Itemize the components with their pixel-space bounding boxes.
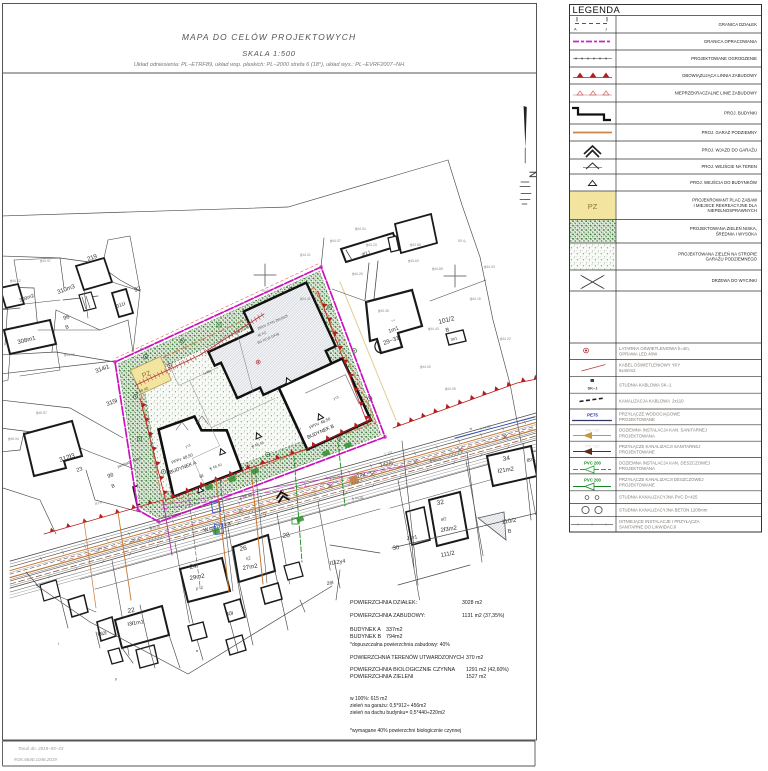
- svg-text:PE75: PE75: [587, 413, 598, 418]
- svg-text:STUDNIA KABLOWA SK−1: STUDNIA KABLOWA SK−1: [619, 382, 672, 387]
- svg-text:50.4₄: 50.4₄: [458, 239, 467, 243]
- svg-text:PROJEKTOWANA: PROJEKTOWANA: [619, 466, 655, 471]
- svg-text:PROJEKTOWANE: PROJEKTOWANE: [619, 417, 655, 422]
- svg-text:╈44.07: ╈44.07: [329, 238, 341, 243]
- svg-text:PROJEKTOWANE: PROJEKTOWANE: [619, 450, 655, 455]
- svg-text:PVC 160: PVC 160: [585, 445, 599, 449]
- svg-text:╈44.65: ╈44.65: [431, 266, 443, 271]
- svg-text:у: у: [115, 676, 117, 681]
- svg-text:PROJEKTOWANA: PROJEKTOWANA: [619, 433, 655, 438]
- svg-text:POWIERZCHNIA DZIAŁEK:: POWIERZCHNIA DZIAŁEK:: [350, 600, 417, 606]
- svg-text:в: в: [196, 648, 198, 653]
- svg-text:PROJ. WEJŚCIE NA TEREN: PROJ. WEJŚCIE NA TEREN: [701, 164, 757, 169]
- svg-text:PROJEKTOWANA ZIELEŃ NISKA,: PROJEKTOWANA ZIELEŃ NISKA,: [690, 226, 757, 231]
- svg-text:34: 34: [502, 455, 511, 463]
- svg-text:PROJ. GARAŻ PODZIEMNY: PROJ. GARAŻ PODZIEMNY: [702, 130, 758, 135]
- svg-text:Toruń dn. 2019−05−23: Toruń dn. 2019−05−23: [18, 746, 64, 751]
- svg-text:KANALIZACJA KABLOWA 2x110: KANALIZACJA KABLOWA 2x110: [619, 399, 684, 404]
- svg-text:PVC 200: PVC 200: [584, 461, 601, 466]
- svg-text:PZ: PZ: [588, 202, 598, 211]
- svg-text:╈43.35: ╈43.35: [377, 308, 389, 313]
- svg-text:370 m2: 370 m2: [466, 655, 483, 661]
- svg-text:I MIEJSCE REKREACYJNE DLA: I MIEJSCE REKREACYJNE DLA: [693, 203, 757, 208]
- svg-text:DOZIEMNA INSTALACJA KAN. SANIT: DOZIEMNA INSTALACJA KAN. SANITARNEJ: [619, 428, 707, 433]
- svg-text:MAPA DO CELÓW PROJEKTOWYCH: MAPA DO CELÓW PROJEKTOWYCH: [182, 32, 356, 42]
- svg-text:PRZYŁĄCZE KANALIZACJI SANITARN: PRZYŁĄCZE KANALIZACJI SANITARNEJ: [619, 444, 700, 449]
- svg-text:ISTNIEJĄCE INSTALACJE I PRZYŁĄ: ISTNIEJĄCE INSTALACJE I PRZYŁĄCZA: [619, 519, 700, 524]
- svg-text:OBOWIĄZUJĄCA LINNIA ZABUDOWY: OBOWIĄZUJĄCA LINNIA ZABUDOWY: [682, 73, 757, 78]
- svg-text:DRZEWA DO WYCINKI: DRZEWA DO WYCINKI: [712, 278, 757, 283]
- svg-text:1527 m2: 1527 m2: [466, 674, 486, 680]
- svg-text:DOZIEMNA INSTALACJA KAN. DESZC: DOZIEMNA INSTALACJA KAN. DESZCZOWEJ: [619, 460, 710, 465]
- svg-text:PROJEKTOWANA ZIELEŃ NA STROPIE: PROJEKTOWANA ZIELEŃ NA STROPIE: [678, 251, 757, 256]
- svg-text:╈44.03: ╈44.03: [483, 264, 495, 269]
- svg-text:╈44.00: ╈44.00: [419, 364, 431, 369]
- svg-text:╈44.05: ╈44.05: [63, 352, 75, 357]
- svg-text:*wymagane 40% powierzchni biol: *wymagane 40% powierzchni biologicznie c…: [350, 728, 461, 734]
- svg-text:STUDNIA KANALIZACYJNA PVC D=42: STUDNIA KANALIZACYJNA PVC D=425: [619, 495, 698, 500]
- svg-text:NIEPRZEKRACZALNE LINIE ZABUDOW: NIEPRZEKRACZALNE LINIE ZABUDOWY: [675, 91, 758, 96]
- svg-text:zieleń na garażu: 0,5*912÷ 456: zieleń na garażu: 0,5*912÷ 456m2: [350, 703, 426, 709]
- svg-text:POWIERZCHNIA BIOLOGICZNIE CZYN: POWIERZCHNIA BIOLOGICZNIE CZYNNA: [350, 667, 456, 673]
- svg-text:PRZYŁĄCZE KANALIZACJI DESZCZOW: PRZYŁĄCZE KANALIZACJI DESZCZOWEJ: [619, 477, 704, 482]
- svg-text:Układ odniesienia: PL−ETRF89,: Układ odniesienia: PL−ETRF89, układ wsp.…: [134, 62, 405, 68]
- svg-text:N: N: [527, 171, 538, 178]
- svg-text:PRZYŁĄCZE WODOCIĄGOWE: PRZYŁĄCZE WODOCIĄGOWE: [619, 412, 680, 417]
- svg-text:LEGENDA: LEGENDA: [573, 4, 621, 15]
- svg-text:╈44.31: ╈44.31: [299, 296, 311, 301]
- svg-text:POWIERZCHNIA TERENÓW UTWARDZON: POWIERZCHNIA TERENÓW UTWARDZONYCH: [350, 654, 464, 661]
- svg-text:╈45.57: ╈45.57: [35, 410, 47, 415]
- svg-text:SANITARNE DO LIKWIDACJI: SANITARNE DO LIKWIDACJI: [619, 525, 676, 530]
- svg-text:╈45.94: ╈45.94: [7, 436, 19, 441]
- svg-text:╈14.21: ╈14.21: [299, 252, 311, 257]
- svg-text:╈44.22: ╈44.22: [499, 336, 511, 341]
- svg-text:SK−1: SK−1: [587, 386, 598, 391]
- svg-text:╈44.05: ╈44.05: [444, 386, 456, 391]
- svg-text:PROJEKTOWANE OGRODZENIE: PROJEKTOWANE OGRODZENIE: [691, 56, 757, 61]
- svg-text:PROJ. BUDYNKI: PROJ. BUDYNKI: [724, 111, 757, 116]
- svg-text:zieleń na dachu budynku= 0,5*4: zieleń na dachu budynku= 0,5*440÷220m2: [350, 710, 445, 716]
- svg-text:╈44.15: ╈44.15: [469, 296, 481, 301]
- svg-text:J: J: [605, 27, 607, 32]
- svg-text:PROJ. WJAZD DO GARAŻU: PROJ. WJAZD DO GARAŻU: [702, 148, 757, 153]
- svg-text:╈43.23: ╈43.23: [365, 242, 377, 247]
- svg-text:PROJ. WEJŚCIA DO BUDYNKÓW: PROJ. WEJŚCIA DO BUDYNKÓW: [690, 180, 758, 185]
- svg-text:32: 32: [436, 499, 445, 507]
- svg-text:╈44.12: ╈44.12: [9, 278, 21, 283]
- svg-text:#GK.6640.1046.2019: #GK.6640.1046.2019: [14, 757, 57, 762]
- svg-text:POWIERZCHNIA ZABUDOWY:: POWIERZCHNIA ZABUDOWY:: [350, 613, 425, 619]
- svg-text:BUDYNEK B: BUDYNEK B: [350, 634, 382, 640]
- svg-text:PVC 200: PVC 200: [584, 478, 601, 483]
- svg-text:GARAŻU PODZIEMNEGO: GARAŻU PODZIEMNEGO: [706, 257, 758, 262]
- svg-text:A: A: [574, 27, 577, 32]
- svg-text:LATARNIA OŚWIETLENIOWA h=4m,: LATARNIA OŚWIETLENIOWA h=4m,: [619, 346, 690, 351]
- svg-text:ŚREDNIA I WYSOKA: ŚREDNIA I WYSOKA: [716, 231, 757, 236]
- svg-text:╈43.97: ╈43.97: [39, 258, 51, 263]
- svg-text:NIEPEŁNOSPRAWNYCH: NIEPEŁNOSPRAWNYCH: [707, 208, 757, 213]
- svg-text:BUDYNEK A: BUDYNEK A: [350, 627, 381, 633]
- svg-text:OPRAWA LED 40W: OPRAWA LED 40W: [619, 352, 658, 357]
- svg-text:*dopuszczalna powierzchnia zab: *dopuszczalna powierzchnia zabudowy: 40%: [350, 642, 450, 648]
- svg-text:3028 m2: 3028 m2: [462, 600, 482, 606]
- svg-text:STUDNIA KANALIZACYJNA BETON 12: STUDNIA KANALIZACYJNA BETON 1200mm: [619, 508, 708, 513]
- svg-text:KABEL OŚWIETLENIOWY YKY: KABEL OŚWIETLENIOWY YKY: [619, 363, 680, 368]
- svg-text:╈44.43: ╈44.43: [427, 326, 439, 331]
- svg-text:PVC 160: PVC 160: [585, 429, 599, 433]
- svg-text:SKALA 1:500: SKALA 1:500: [242, 49, 296, 58]
- svg-text:╈43.63: ╈43.63: [407, 258, 419, 263]
- svg-text:╈44.04: ╈44.04: [354, 226, 366, 231]
- svg-text:PROJEKROWANT PLAC ZABAW: PROJEKROWANT PLAC ZABAW: [692, 197, 758, 202]
- svg-text:5x4mm2: 5x4mm2: [619, 368, 636, 373]
- svg-text:ℴł: ℴł: [298, 427, 301, 431]
- svg-text:╈44.26: ╈44.26: [351, 271, 363, 276]
- svg-text:╈43.88: ╈43.88: [409, 242, 421, 247]
- svg-text:GRANICA OPRACOWANIA: GRANICA OPRACOWANIA: [704, 39, 757, 44]
- svg-text:GRANICA DZIAŁEK: GRANICA DZIAŁEK: [719, 22, 758, 27]
- svg-text:PROJEKTOWANE: PROJEKTOWANE: [619, 483, 655, 488]
- svg-text:794m2: 794m2: [386, 634, 402, 640]
- svg-text:1131 m2 (37,35%): 1131 m2 (37,35%): [462, 613, 505, 619]
- svg-text:POWIERZCHNIA ZIELENI: POWIERZCHNIA ZIELENI: [350, 674, 414, 680]
- svg-text:ł: ł: [58, 641, 59, 646]
- svg-text:50.02: 50.02: [262, 289, 270, 293]
- svg-text:w 100%: 615 m2: w 100%: 615 m2: [350, 696, 387, 702]
- svg-text:337m2: 337m2: [386, 627, 402, 633]
- svg-text:1291 m2 (42,60%): 1291 m2 (42,60%): [466, 667, 509, 673]
